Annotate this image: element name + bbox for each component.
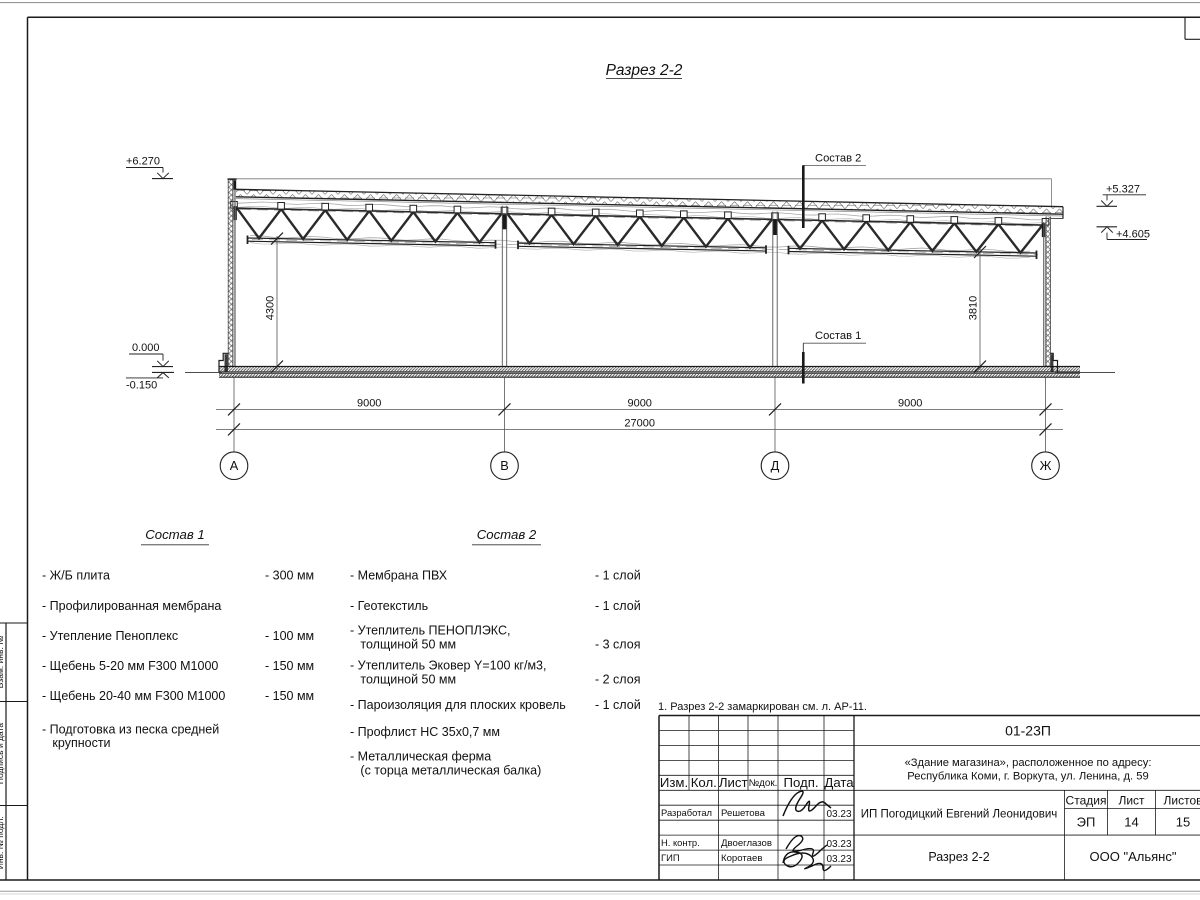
svg-text:- Пароизоляция для плоских кро: - Пароизоляция для плоских кровель [350,698,566,712]
svg-text:- Подготовка из песка средней: - Подготовка из песка средней [42,722,219,736]
svg-text:15: 15 [1176,814,1190,829]
svg-text:Решетова: Решетова [721,808,766,819]
svg-text:Состав 2: Состав 2 [477,527,537,542]
svg-text:Состав 1: Состав 1 [815,330,861,342]
svg-text:ГИП: ГИП [661,852,680,863]
svg-text:- Утеплитель ПЕНОПЛЭКС,: - Утеплитель ПЕНОПЛЭКС, [350,623,510,637]
svg-text:- Ж/Б плита: - Ж/Б плита [42,568,110,582]
svg-text:Разработал: Разработал [661,807,712,818]
svg-text:ЭП: ЭП [1077,814,1096,829]
svg-text:9000: 9000 [357,397,381,409]
svg-text:Стадия: Стадия [1066,793,1107,807]
svg-text:крупности: крупности [42,736,111,750]
svg-text:Н. контр.: Н. контр. [661,837,700,848]
svg-text:-0.150: -0.150 [126,380,157,392]
svg-text:ИП Погодицкий Евгений Леонидов: ИП Погодицкий Евгений Леонидович [861,809,1058,821]
svg-text:- Геотекстиль: - Геотекстиль [350,599,428,613]
svg-text:- 2 слоя: - 2 слоя [595,672,640,686]
svg-text:Разрез 2-2: Разрез 2-2 [928,850,989,864]
svg-text:- Утеплитель Эковер Y=100 кг/м: - Утеплитель Эковер Y=100 кг/м3, [350,658,546,672]
svg-text:Д: Д [771,458,780,473]
svg-text:- Щебень 20-40 мм F300 М1000: - Щебень 20-40 мм F300 М1000 [42,689,225,703]
svg-text:+6.270: +6.270 [126,156,160,168]
svg-text:01-23П: 01-23П [1005,722,1051,738]
svg-text:1. Разрез 2-2 замаркирован см.: 1. Разрез 2-2 замаркирован см. л. АР-11. [658,701,867,713]
svg-text:Взам. инв. №: Взам. инв. № [0,636,5,689]
svg-text:Состав 1: Состав 1 [145,527,205,542]
svg-text:+4.605: +4.605 [1116,229,1150,241]
svg-text:Подп.: Подп. [783,775,818,790]
svg-text:Республика Коми, г. Воркута, у: Республика Коми, г. Воркута, ул. Ленина,… [907,770,1148,782]
svg-text:- 1 слой: - 1 слой [595,568,641,582]
svg-text:03.23: 03.23 [826,839,851,850]
svg-text:- 3 слоя: - 3 слоя [595,637,640,651]
svg-text:№док.: №док. [749,778,778,789]
svg-text:9000: 9000 [898,397,922,409]
svg-text:- 150 мм: - 150 мм [265,659,314,673]
svg-text:В: В [500,458,509,473]
svg-text:+5.327: +5.327 [1106,183,1140,195]
svg-text:- 300 мм: - 300 мм [265,568,314,582]
svg-text:- Щебень 5-20 мм F300 М1000: - Щебень 5-20 мм F300 М1000 [42,659,218,673]
svg-text:Листов: Листов [1164,793,1200,807]
svg-text:- Утепление Пеноплекс: - Утепление Пеноплекс [42,629,178,643]
svg-text:Двоеглазов: Двоеглазов [721,838,772,849]
svg-text:03.23: 03.23 [826,854,851,865]
svg-text:- Профлист НС 35х0,7 мм: - Профлист НС 35х0,7 мм [350,725,500,739]
svg-text:Инв. № подл.: Инв. № подл. [0,816,5,869]
svg-text:Дата: Дата [824,775,854,790]
svg-text:4300: 4300 [265,296,277,320]
svg-text:Лист: Лист [719,775,748,790]
svg-text:- Мембрана ПВХ: - Мембрана ПВХ [350,568,448,582]
svg-text:- 150 мм: - 150 мм [265,689,314,703]
svg-text:«Здание магазина», расположенн: «Здание магазина», расположенное по адре… [905,757,1152,769]
svg-text:А: А [230,458,239,473]
svg-text:ООО "Альянс": ООО "Альянс" [1090,849,1177,864]
svg-text:толщиной 50 мм: толщиной 50 мм [350,672,456,686]
svg-text:0.000: 0.000 [132,342,160,354]
svg-text:Подпись и дата: Подпись и дата [0,723,5,784]
svg-text:- Металлическая ферма: - Металлическая ферма [350,749,491,763]
svg-text:Ж: Ж [1040,458,1052,473]
svg-text:03.23: 03.23 [826,809,851,820]
svg-text:Коротаев: Коротаев [721,853,762,864]
svg-text:Лист: Лист [1118,793,1145,807]
svg-text:Изм.: Изм. [660,775,688,790]
svg-text:Разрез 2-2: Разрез 2-2 [606,62,683,79]
svg-text:- 1 слой: - 1 слой [595,599,641,613]
svg-text:толщиной 50 мм: толщиной 50 мм [350,637,456,651]
svg-text:9000: 9000 [627,397,651,409]
svg-text:27000: 27000 [624,417,655,429]
svg-text:(с торца металлическая балка): (с торца металлическая балка) [350,763,541,777]
svg-text:- 1 слой: - 1 слой [595,698,641,712]
svg-text:Состав 2: Состав 2 [815,153,861,165]
svg-text:Кол.: Кол. [691,775,717,790]
svg-text:- 100 мм: - 100 мм [265,629,314,643]
svg-text:- Профилированная мембрана: - Профилированная мембрана [42,599,221,613]
svg-text:14: 14 [1124,814,1138,829]
svg-text:3810: 3810 [968,296,980,320]
